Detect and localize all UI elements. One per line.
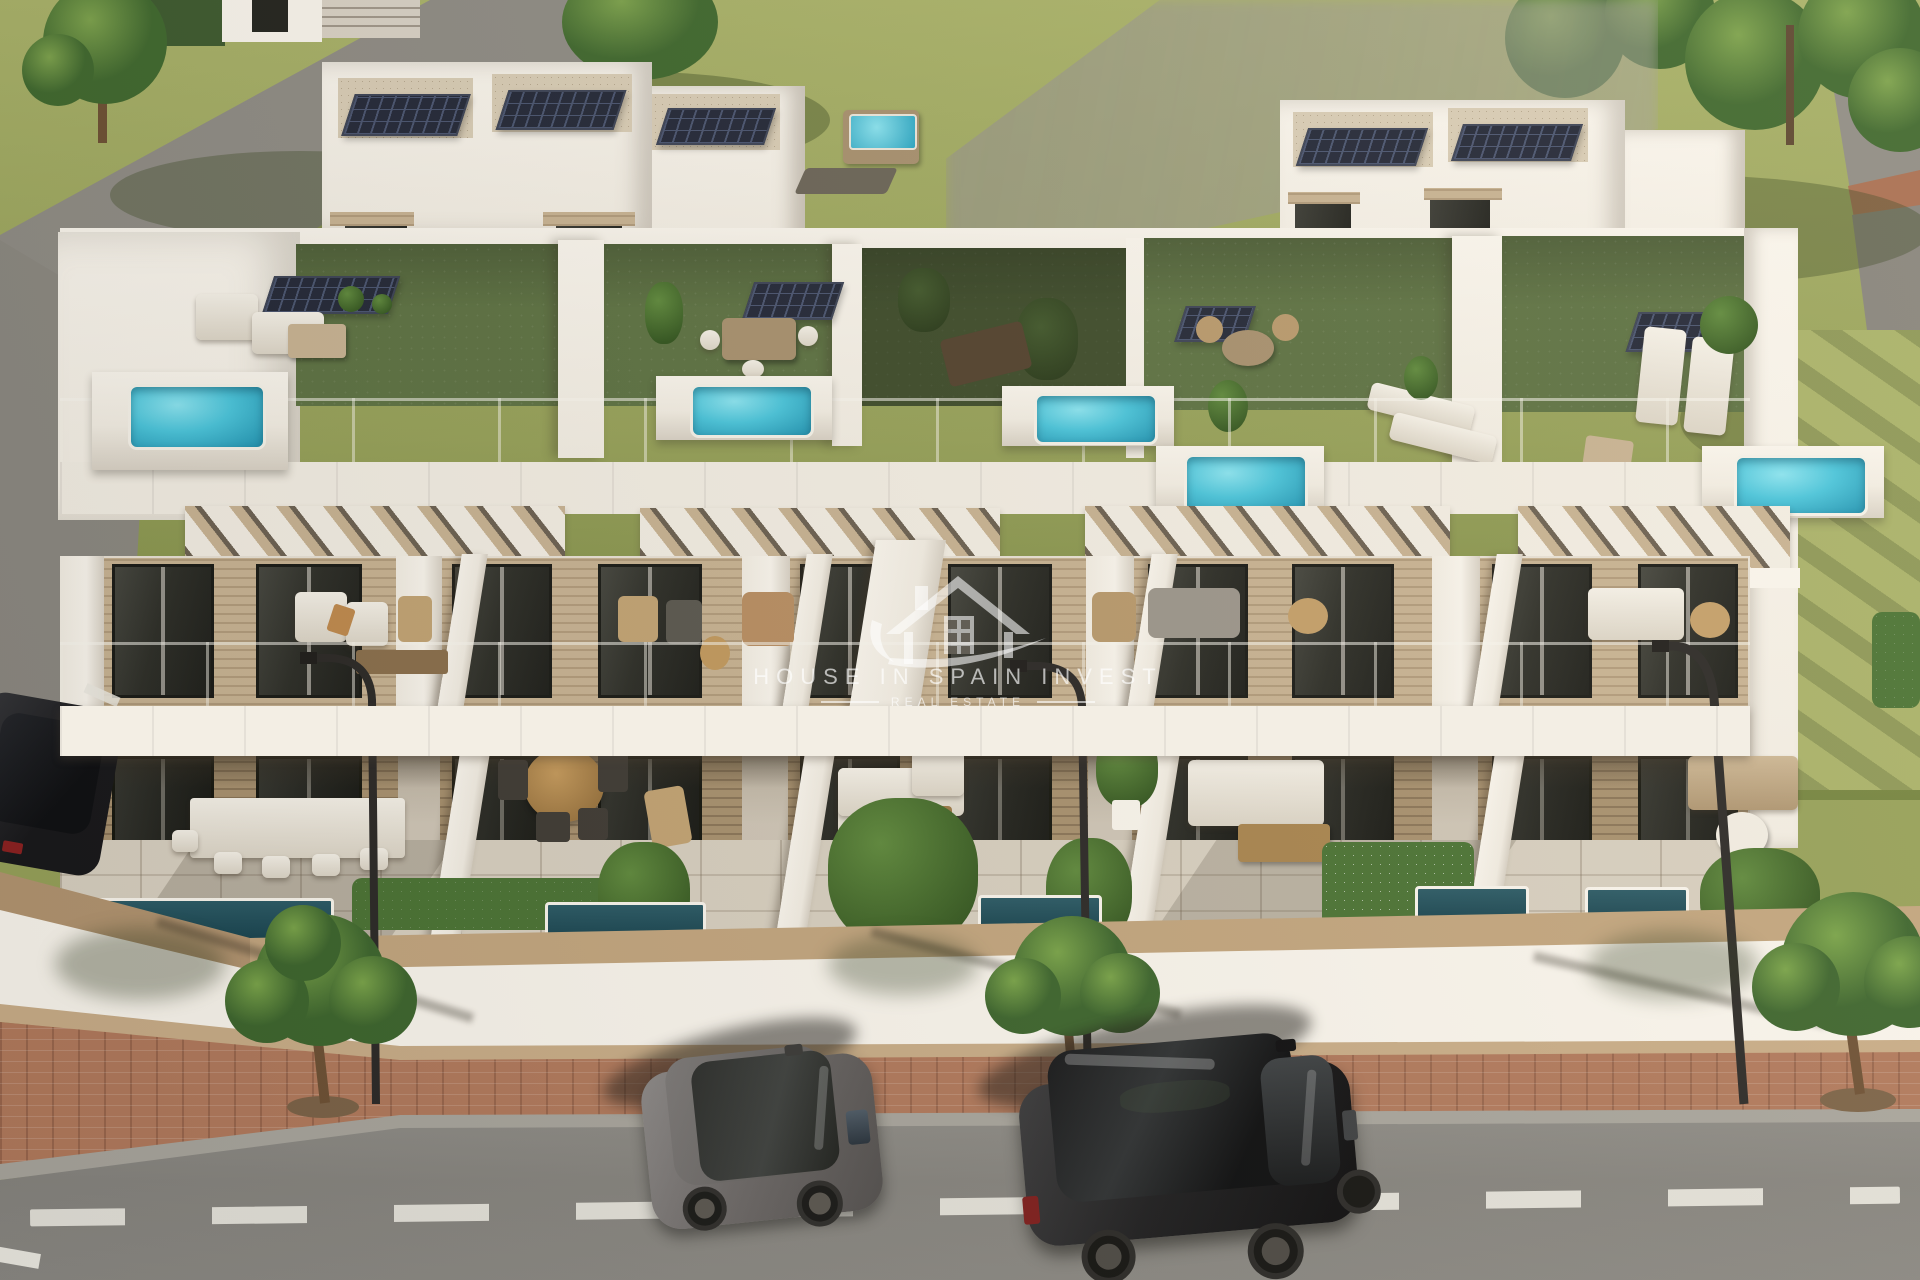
logo-window-pane xyxy=(948,620,957,629)
watermark-rule-right xyxy=(1037,701,1095,703)
tree-shadow xyxy=(828,935,978,995)
tree-canopy xyxy=(985,958,1061,1034)
tree-canopy xyxy=(265,905,341,981)
watermark-title: HOUSE IN SPAIN INVEST xyxy=(718,664,1198,690)
logo-window-pane xyxy=(948,646,957,654)
logo-window-pane xyxy=(961,620,970,629)
watermark-rule-left xyxy=(821,701,879,703)
car-mirror xyxy=(1275,1039,1296,1053)
lamp-head xyxy=(1652,640,1669,652)
logo-window-pane xyxy=(961,646,970,654)
watermark: HOUSE IN SPAIN INVEST REAL ESTATE xyxy=(718,572,1198,709)
logo-window-pane xyxy=(961,633,970,642)
logo-swoosh xyxy=(870,620,894,662)
logo-chimney xyxy=(915,586,928,610)
lamp-head xyxy=(300,652,317,664)
logo-wall xyxy=(1004,632,1013,658)
tree-shadow xyxy=(1588,930,1758,1000)
tree-shadow xyxy=(55,928,225,1000)
car-windshield xyxy=(1259,1054,1342,1188)
tree-canopy xyxy=(329,956,417,1044)
car-mirror xyxy=(784,1044,803,1057)
street-tree xyxy=(1738,882,1920,1117)
tree-canopy xyxy=(1752,943,1840,1031)
car-headlight xyxy=(1342,1110,1359,1141)
car-headlight xyxy=(845,1109,870,1145)
car-taillight xyxy=(1022,1196,1040,1225)
logo-window-pane xyxy=(948,633,957,642)
car-black-suv xyxy=(1005,1017,1380,1280)
house-logo-icon xyxy=(860,572,1056,668)
street-tree xyxy=(205,905,435,1125)
render-canvas: HOUSE IN SPAIN INVEST REAL ESTATE xyxy=(0,0,1920,1280)
car-gray-hatchback xyxy=(633,1034,897,1249)
watermark-subtitle: REAL ESTATE xyxy=(891,695,1025,709)
watermark-subtitle-row: REAL ESTATE xyxy=(718,695,1198,709)
floor-slab-band xyxy=(60,706,1750,756)
